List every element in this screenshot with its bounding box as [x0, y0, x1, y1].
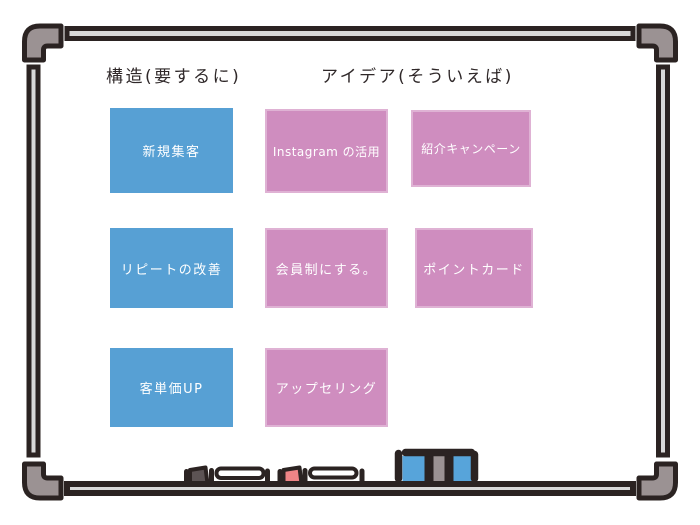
frame-left-rail	[29, 67, 38, 455]
sticky-note-average-spend-up: 客単価UP	[110, 348, 233, 427]
sticky-note-new-customers: 新規集客	[110, 108, 233, 193]
sticky-note-point-card: ポイントカード	[415, 228, 533, 308]
sticky-note-referral-campaign: 紹介キャンペーン	[411, 110, 531, 187]
column-heading-structure: 構造(要するに)	[106, 65, 241, 89]
frame-corner-top-left	[25, 26, 62, 60]
sticky-note-label: 紹介キャンペーン	[421, 140, 520, 157]
whiteboard-illustration: 構造(要するに) アイデア(そういえば) 新規集客 Instagram の活用 …	[0, 0, 700, 525]
frame-right-rail	[659, 67, 668, 455]
sticky-note-membership: 会員制にする。	[265, 228, 388, 308]
sticky-note-upselling: アップセリング	[265, 348, 388, 427]
sticky-note-instagram: Instagram の活用	[265, 109, 388, 193]
sticky-note-label: 客単価UP	[140, 378, 204, 397]
sticky-note-label: ポイントカード	[423, 259, 525, 278]
sticky-note-repeat-improvement: リピートの改善	[110, 228, 233, 308]
frame-corner-bottom-left	[25, 464, 62, 498]
eraser-icon	[399, 453, 475, 483]
sticky-note-label: 会員制にする。	[276, 259, 378, 278]
sticky-note-label: アップセリング	[276, 378, 378, 397]
sticky-note-label: リピートの改善	[121, 259, 223, 278]
frame-bottom-rail	[67, 484, 633, 493]
sticky-note-label: Instagram の活用	[273, 143, 380, 160]
frame-corner-bottom-right	[639, 464, 676, 498]
sticky-note-label: 新規集客	[142, 141, 200, 160]
frame-corner-top-right	[639, 26, 676, 60]
column-heading-ideas: アイデア(そういえば)	[321, 65, 514, 89]
frame-top-rail	[67, 29, 633, 39]
